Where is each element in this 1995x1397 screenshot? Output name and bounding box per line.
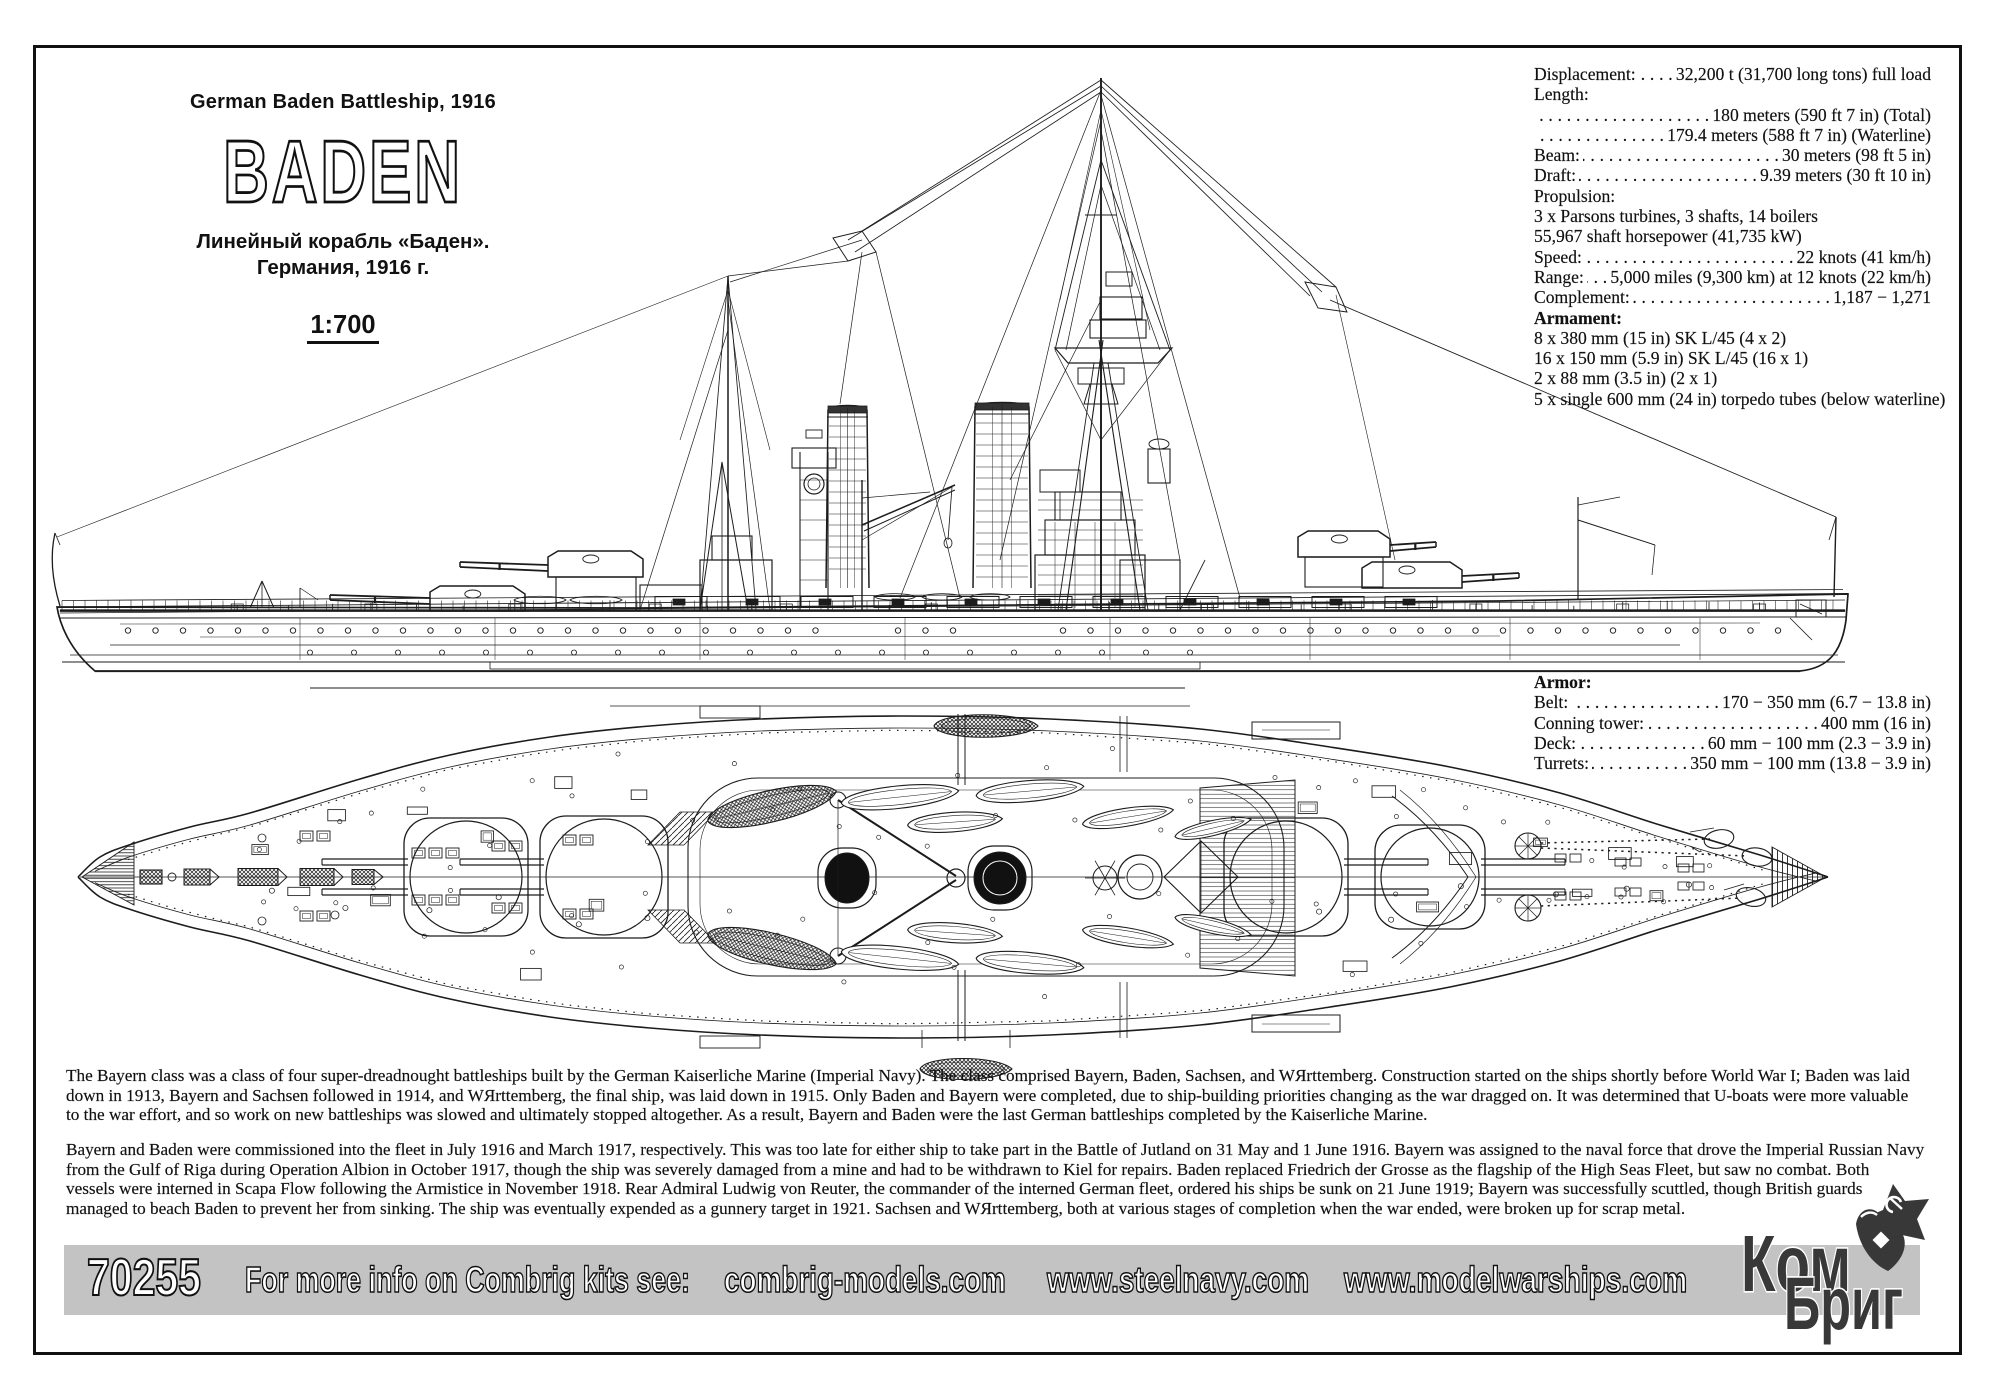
svg-text:Бриг: Бриг	[1784, 1262, 1903, 1345]
